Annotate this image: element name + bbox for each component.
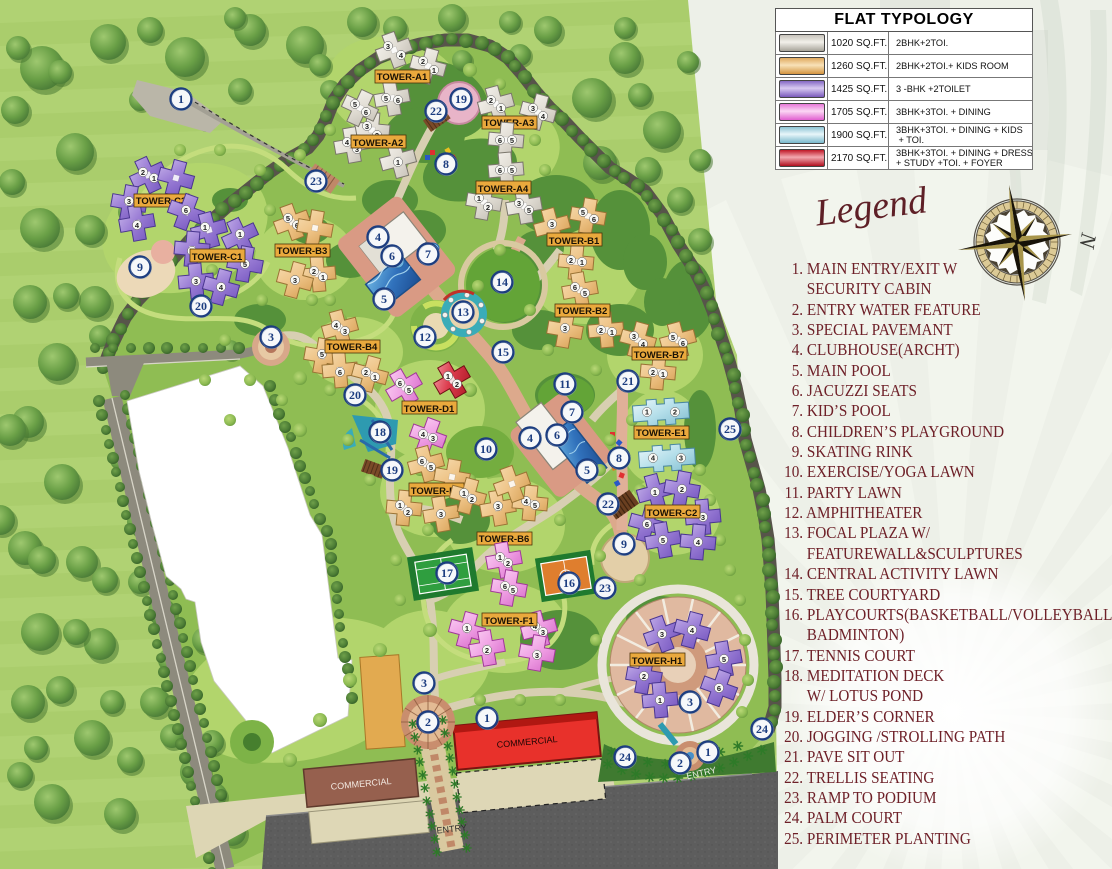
svg-text:19: 19 bbox=[386, 463, 398, 477]
svg-text:2: 2 bbox=[455, 380, 459, 389]
svg-text:TOWER-B1: TOWER-B1 bbox=[549, 236, 600, 247]
svg-text:TOWER-A4: TOWER-A4 bbox=[478, 184, 529, 195]
svg-text:3: 3 bbox=[517, 199, 521, 208]
svg-text:2: 2 bbox=[425, 715, 431, 729]
svg-text:6: 6 bbox=[554, 428, 560, 442]
svg-text:1: 1 bbox=[396, 158, 400, 167]
svg-text:19: 19 bbox=[455, 92, 467, 106]
svg-text:5: 5 bbox=[581, 208, 585, 217]
svg-text:5: 5 bbox=[510, 166, 514, 175]
svg-text:1: 1 bbox=[238, 230, 242, 239]
svg-text:18: 18 bbox=[374, 425, 386, 439]
svg-text:2: 2 bbox=[421, 57, 425, 66]
svg-text:1: 1 bbox=[152, 174, 156, 183]
svg-text:24: 24 bbox=[756, 722, 768, 736]
svg-text:5: 5 bbox=[584, 463, 590, 477]
svg-text:2: 2 bbox=[406, 508, 410, 517]
svg-text:1: 1 bbox=[499, 104, 503, 113]
svg-text:5: 5 bbox=[661, 536, 665, 545]
svg-text:6: 6 bbox=[592, 215, 596, 224]
svg-text:3: 3 bbox=[343, 327, 347, 336]
svg-text:3: 3 bbox=[365, 122, 369, 131]
svg-text:5: 5 bbox=[527, 206, 531, 215]
svg-text:5: 5 bbox=[384, 94, 388, 103]
svg-text:2: 2 bbox=[673, 408, 677, 417]
svg-text:2: 2 bbox=[677, 756, 683, 770]
svg-text:3: 3 bbox=[632, 332, 636, 341]
svg-text:5: 5 bbox=[381, 292, 387, 306]
svg-text:5: 5 bbox=[407, 386, 411, 395]
svg-text:1: 1 bbox=[645, 408, 649, 417]
svg-text:6: 6 bbox=[498, 166, 502, 175]
svg-text:16: 16 bbox=[563, 576, 575, 590]
svg-text:6: 6 bbox=[573, 283, 577, 292]
svg-text:6: 6 bbox=[645, 520, 649, 529]
svg-text:2: 2 bbox=[489, 96, 493, 105]
svg-text:9: 9 bbox=[621, 537, 627, 551]
svg-text:6: 6 bbox=[184, 206, 188, 215]
svg-text:3: 3 bbox=[421, 676, 427, 690]
svg-text:6: 6 bbox=[364, 108, 368, 117]
svg-text:9: 9 bbox=[137, 260, 143, 274]
svg-text:3: 3 bbox=[701, 513, 705, 522]
svg-text:11: 11 bbox=[559, 377, 570, 391]
svg-text:6: 6 bbox=[498, 136, 502, 145]
svg-text:2: 2 bbox=[486, 203, 490, 212]
svg-text:12: 12 bbox=[419, 330, 431, 344]
svg-text:3: 3 bbox=[293, 276, 297, 285]
svg-text:20: 20 bbox=[195, 299, 207, 313]
svg-text:5: 5 bbox=[722, 655, 726, 664]
svg-text:1: 1 bbox=[203, 223, 207, 232]
svg-text:TOWER-C2: TOWER-C2 bbox=[647, 508, 698, 519]
svg-text:TOWER-B2: TOWER-B2 bbox=[557, 306, 608, 317]
svg-text:TOWER-H1: TOWER-H1 bbox=[632, 656, 683, 667]
svg-text:3: 3 bbox=[194, 277, 198, 286]
svg-text:2: 2 bbox=[569, 256, 573, 265]
svg-text:3: 3 bbox=[550, 220, 554, 229]
svg-text:1: 1 bbox=[465, 624, 469, 633]
svg-text:7: 7 bbox=[569, 405, 575, 419]
svg-text:1: 1 bbox=[321, 273, 325, 282]
svg-text:13: 13 bbox=[457, 305, 469, 319]
svg-text:1: 1 bbox=[661, 370, 665, 379]
svg-text:2: 2 bbox=[485, 646, 489, 655]
svg-text:3: 3 bbox=[687, 695, 693, 709]
svg-text:3: 3 bbox=[431, 434, 435, 443]
svg-text:TOWER-E1: TOWER-E1 bbox=[636, 428, 687, 439]
svg-text:8: 8 bbox=[443, 157, 449, 171]
svg-text:1: 1 bbox=[580, 258, 584, 267]
svg-text:5: 5 bbox=[533, 501, 537, 510]
svg-text:2: 2 bbox=[599, 326, 603, 335]
svg-text:1: 1 bbox=[373, 373, 377, 382]
svg-text:6: 6 bbox=[398, 379, 402, 388]
svg-text:1: 1 bbox=[432, 66, 436, 75]
svg-text:3: 3 bbox=[386, 42, 390, 51]
svg-text:10: 10 bbox=[480, 442, 492, 456]
svg-text:3: 3 bbox=[127, 197, 131, 206]
svg-text:23: 23 bbox=[599, 581, 611, 595]
svg-text:TOWER-A2: TOWER-A2 bbox=[353, 138, 404, 149]
svg-text:TOWER-C1: TOWER-C1 bbox=[192, 252, 243, 263]
svg-text:24: 24 bbox=[619, 750, 631, 764]
svg-text:6: 6 bbox=[717, 684, 721, 693]
svg-text:14: 14 bbox=[496, 275, 508, 289]
svg-text:17: 17 bbox=[441, 566, 453, 580]
svg-text:2: 2 bbox=[312, 267, 316, 276]
svg-text:2: 2 bbox=[506, 559, 510, 568]
svg-text:6: 6 bbox=[420, 457, 424, 466]
svg-text:5: 5 bbox=[583, 289, 587, 298]
svg-text:25: 25 bbox=[724, 422, 736, 436]
svg-text:4: 4 bbox=[527, 431, 533, 445]
svg-text:TOWER-F1: TOWER-F1 bbox=[484, 616, 534, 627]
svg-text:1: 1 bbox=[484, 711, 490, 725]
svg-text:1: 1 bbox=[178, 92, 184, 106]
svg-text:1: 1 bbox=[446, 372, 450, 381]
svg-text:6: 6 bbox=[503, 582, 507, 591]
svg-text:1: 1 bbox=[462, 489, 466, 498]
svg-text:21: 21 bbox=[622, 374, 634, 388]
svg-text:23: 23 bbox=[310, 174, 322, 188]
svg-text:15: 15 bbox=[497, 345, 509, 359]
svg-text:2: 2 bbox=[364, 368, 368, 377]
svg-text:7: 7 bbox=[425, 247, 431, 261]
svg-text:6: 6 bbox=[389, 249, 395, 263]
svg-text:5: 5 bbox=[429, 463, 433, 472]
svg-text:3: 3 bbox=[268, 330, 274, 344]
svg-text:5: 5 bbox=[320, 350, 324, 359]
svg-text:4: 4 bbox=[375, 230, 381, 244]
svg-text:TOWER-B3: TOWER-B3 bbox=[277, 246, 328, 257]
svg-text:3: 3 bbox=[496, 502, 500, 511]
svg-text:22: 22 bbox=[430, 104, 442, 118]
svg-text:6: 6 bbox=[396, 96, 400, 105]
svg-text:2: 2 bbox=[470, 495, 474, 504]
svg-text:1: 1 bbox=[705, 745, 711, 759]
svg-text:5: 5 bbox=[671, 333, 675, 342]
svg-text:2: 2 bbox=[651, 368, 655, 377]
svg-text:5: 5 bbox=[510, 136, 514, 145]
svg-text:1: 1 bbox=[658, 696, 662, 705]
svg-text:3: 3 bbox=[535, 651, 539, 660]
svg-text:8: 8 bbox=[616, 451, 622, 465]
svg-text:TOWER-B4: TOWER-B4 bbox=[327, 342, 378, 353]
svg-text:3: 3 bbox=[660, 630, 664, 639]
svg-text:1: 1 bbox=[653, 488, 657, 497]
svg-text:TOWER-B7: TOWER-B7 bbox=[634, 350, 685, 361]
svg-text:1: 1 bbox=[498, 553, 502, 562]
svg-text:1: 1 bbox=[610, 328, 614, 337]
svg-text:TOWER-A1: TOWER-A1 bbox=[377, 72, 428, 83]
svg-text:5: 5 bbox=[511, 586, 515, 595]
svg-text:1: 1 bbox=[477, 194, 481, 203]
svg-text:2: 2 bbox=[680, 485, 684, 494]
svg-text:2: 2 bbox=[642, 672, 646, 681]
svg-text:2: 2 bbox=[141, 168, 145, 177]
svg-text:1: 1 bbox=[398, 501, 402, 510]
svg-text:5: 5 bbox=[353, 100, 357, 109]
svg-text:22: 22 bbox=[602, 497, 614, 511]
svg-text:TOWER-D1: TOWER-D1 bbox=[404, 404, 455, 415]
svg-text:20: 20 bbox=[349, 388, 361, 402]
svg-text:3: 3 bbox=[439, 510, 443, 519]
svg-text:3: 3 bbox=[679, 454, 683, 463]
svg-text:6: 6 bbox=[338, 368, 342, 377]
svg-text:3: 3 bbox=[563, 324, 567, 333]
svg-text:5: 5 bbox=[286, 214, 290, 223]
svg-text:3: 3 bbox=[531, 104, 535, 113]
